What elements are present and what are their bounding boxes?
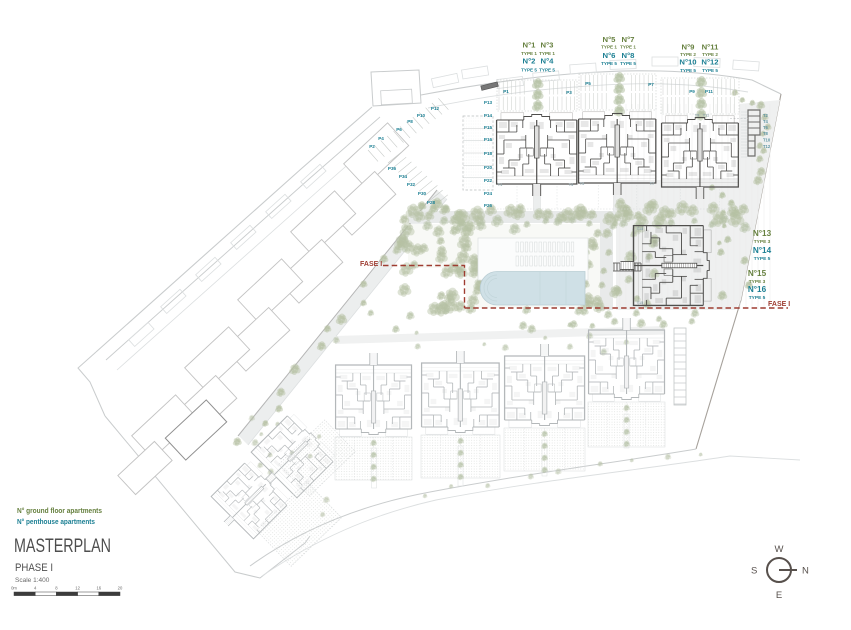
svg-text:P20: P20 xyxy=(484,165,493,170)
svg-text:P4: P4 xyxy=(378,136,384,141)
svg-text:P3: P3 xyxy=(566,90,572,95)
svg-text:P14: P14 xyxy=(484,113,493,118)
svg-text:T12: T12 xyxy=(763,144,771,149)
svg-text:P12: P12 xyxy=(431,106,440,111)
svg-text:N°8: N°8 xyxy=(622,51,636,60)
svg-text:P8: P8 xyxy=(407,119,413,124)
svg-text:TYPE 5: TYPE 5 xyxy=(749,295,766,301)
svg-text:TYPE 1: TYPE 1 xyxy=(539,51,555,56)
svg-text:TYPE 1: TYPE 1 xyxy=(620,45,636,50)
svg-text:T3: T3 xyxy=(569,183,573,187)
svg-text:P5: P5 xyxy=(585,81,591,86)
svg-text:20: 20 xyxy=(118,586,123,591)
svg-text:N°4: N°4 xyxy=(541,57,555,66)
svg-text:T9: T9 xyxy=(695,114,699,118)
svg-text:P28: P28 xyxy=(427,200,436,205)
svg-text:TYPE 5: TYPE 5 xyxy=(601,61,617,66)
svg-text:S: S xyxy=(751,566,757,577)
svg-text:N°6: N°6 xyxy=(603,51,616,60)
svg-text:T2: T2 xyxy=(763,113,769,118)
svg-text:P15: P15 xyxy=(484,125,493,130)
svg-text:T6: T6 xyxy=(763,125,769,130)
svg-text:TYPE 2: TYPE 2 xyxy=(680,52,696,57)
svg-text:P13: P13 xyxy=(484,100,493,105)
svg-text:T4: T4 xyxy=(763,119,769,124)
svg-text:4: 4 xyxy=(34,586,37,591)
svg-text:FASE I: FASE I xyxy=(768,301,790,308)
svg-text:P18: P18 xyxy=(484,151,493,156)
svg-text:N° penthouse apartments: N° penthouse apartments xyxy=(17,517,95,526)
svg-text:N°11: N°11 xyxy=(702,43,719,52)
svg-text:T13: T13 xyxy=(637,227,644,231)
svg-text:P22: P22 xyxy=(484,178,493,183)
svg-text:T7: T7 xyxy=(650,182,654,186)
svg-text:P30: P30 xyxy=(418,191,427,196)
svg-text:P16: P16 xyxy=(484,137,493,142)
svg-text:P1: P1 xyxy=(503,89,509,94)
svg-text:T1: T1 xyxy=(498,183,502,187)
svg-text:TYPE 1: TYPE 1 xyxy=(521,51,537,56)
svg-text:12: 12 xyxy=(75,586,80,591)
svg-text:P26: P26 xyxy=(484,203,493,208)
svg-text:N°1: N°1 xyxy=(523,41,537,50)
svg-text:TYPE 5: TYPE 5 xyxy=(620,61,636,66)
svg-text:TYPE 5: TYPE 5 xyxy=(702,68,718,73)
svg-text:TYPE 3: TYPE 3 xyxy=(754,239,771,245)
svg-text:N°16: N°16 xyxy=(748,285,767,294)
svg-text:N°7: N°7 xyxy=(622,35,635,44)
svg-text:P11: P11 xyxy=(705,89,713,94)
svg-text:N°3: N°3 xyxy=(541,41,554,50)
svg-text:P2: P2 xyxy=(369,144,375,149)
svg-text:TYPE 5: TYPE 5 xyxy=(680,68,696,73)
svg-text:N°5: N°5 xyxy=(603,35,617,44)
svg-text:P10: P10 xyxy=(417,113,426,118)
svg-text:T11: T11 xyxy=(703,114,709,118)
svg-text:N° ground floor apartments: N° ground floor apartments xyxy=(17,506,102,515)
svg-text:TYPE 1: TYPE 1 xyxy=(601,45,617,50)
svg-text:N°13: N°13 xyxy=(753,229,772,238)
svg-text:W: W xyxy=(775,544,784,555)
svg-text:TYPE 2: TYPE 2 xyxy=(702,52,718,57)
svg-text:PHASE I: PHASE I xyxy=(15,562,53,574)
svg-text:T15: T15 xyxy=(637,301,644,305)
svg-text:0m: 0m xyxy=(11,586,17,591)
svg-text:TYPE 5: TYPE 5 xyxy=(754,256,771,262)
svg-text:MASTERPLAN: MASTERPLAN xyxy=(14,536,111,557)
svg-text:N: N xyxy=(802,566,809,577)
svg-text:T8: T8 xyxy=(763,131,769,136)
svg-text:P7: P7 xyxy=(648,82,654,87)
svg-text:N°14: N°14 xyxy=(753,246,772,255)
svg-text:16: 16 xyxy=(96,586,101,591)
svg-text:E: E xyxy=(776,590,782,601)
svg-text:N°9: N°9 xyxy=(682,43,695,52)
svg-text:P9: P9 xyxy=(689,89,695,94)
svg-text:P34: P34 xyxy=(399,174,408,179)
svg-text:P32: P32 xyxy=(407,182,416,187)
svg-text:N°2: N°2 xyxy=(523,57,536,66)
svg-text:TYPE 5: TYPE 5 xyxy=(521,68,537,73)
svg-text:P36: P36 xyxy=(388,166,397,171)
svg-text:N°15: N°15 xyxy=(748,269,767,278)
svg-text:Scale 1:400: Scale 1:400 xyxy=(15,577,50,584)
svg-text:N°12: N°12 xyxy=(701,58,718,67)
svg-text:N°10: N°10 xyxy=(679,58,696,67)
svg-text:TYPE 5: TYPE 5 xyxy=(539,68,555,73)
svg-text:FASE I: FASE I xyxy=(360,261,382,268)
svg-text:8: 8 xyxy=(55,586,58,591)
svg-text:T10: T10 xyxy=(763,138,771,143)
svg-text:P24: P24 xyxy=(484,191,493,196)
svg-text:P6: P6 xyxy=(396,127,402,132)
svg-text:T5: T5 xyxy=(580,182,584,186)
